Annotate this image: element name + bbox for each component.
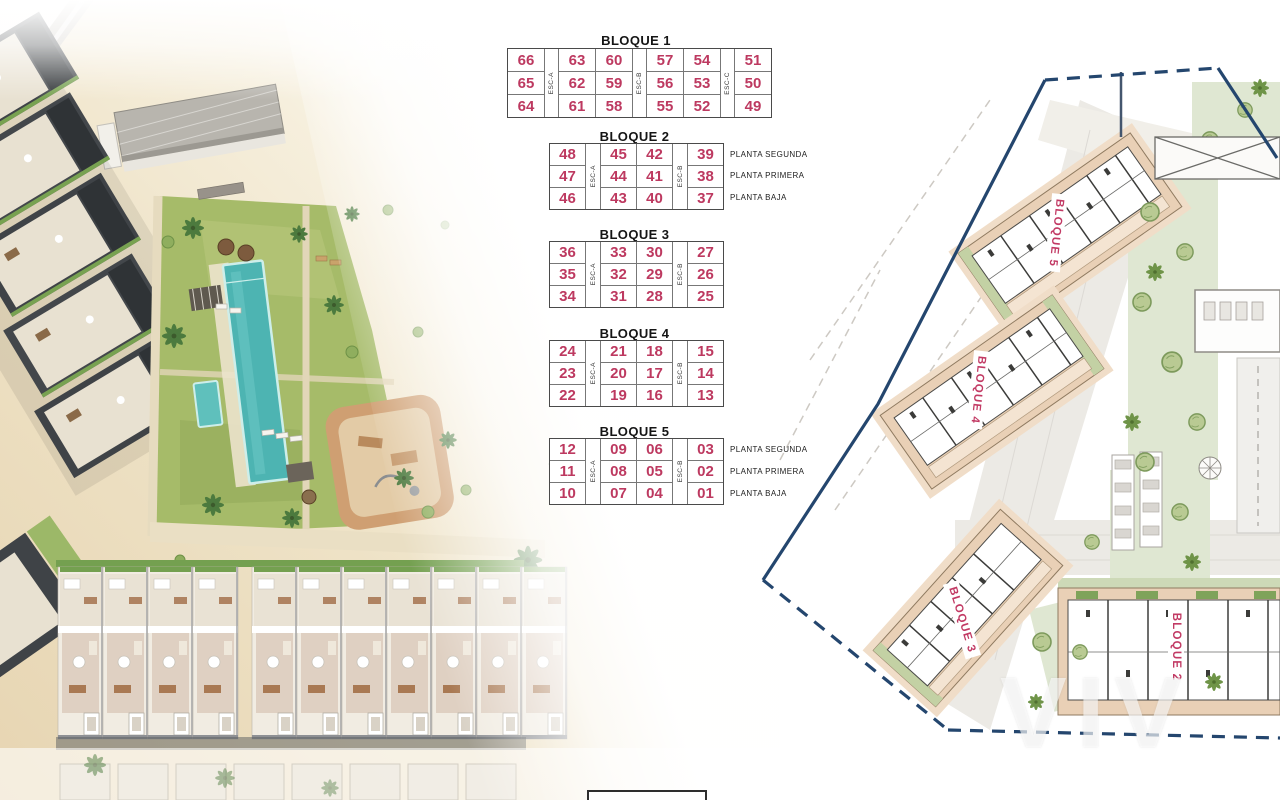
unit-cell: 48 [550, 144, 586, 166]
stair-label: ESC-A [590, 362, 597, 384]
stair-label: ESC-B [677, 362, 684, 384]
stair-label: ESC-B [677, 460, 684, 482]
unit-cell: 42 [637, 144, 673, 166]
unit-cell: 24 [550, 341, 586, 363]
bloque-2-title: BLOQUE 2 [549, 129, 720, 144]
floor-label: PLANTA BAJA [730, 489, 787, 498]
unit-cell: 38 [688, 166, 723, 188]
unit-cell: 30 [637, 242, 673, 264]
cutoff-table-box [587, 790, 707, 800]
unit-cell: 43 [601, 188, 637, 209]
unit-cell: 41 [637, 166, 673, 188]
bloque-3-table: 36 35 34 ESC-A 33 32 31 30 29 28 ESC-B 2… [549, 241, 724, 308]
unit-cell: 03 [688, 439, 723, 461]
unit-cell: 46 [550, 188, 586, 209]
unit-cell: 15 [688, 341, 723, 363]
unit-cell: 47 [550, 166, 586, 188]
unit-cell: 49 [735, 95, 771, 117]
unit-cell: 33 [601, 242, 637, 264]
unit-cell: 10 [550, 483, 586, 504]
stair-label: ESC-B [677, 165, 684, 187]
unit-cell: 11 [550, 461, 586, 483]
unit-cell: 39 [688, 144, 723, 166]
unit-cell: 50 [735, 72, 771, 95]
unit-cell: 65 [508, 72, 545, 95]
unit-cell: 52 [684, 95, 721, 117]
unit-cell: 55 [647, 95, 684, 117]
floor-label: PLANTA PRIMERA [730, 467, 804, 476]
unit-cell: 45 [601, 144, 637, 166]
unit-cell: 17 [637, 363, 673, 385]
bloque-5-title: BLOQUE 5 [549, 424, 720, 439]
unit-cell: 08 [601, 461, 637, 483]
unit-cell: 07 [601, 483, 637, 504]
unit-cell: 53 [684, 72, 721, 95]
unit-cell: 29 [637, 264, 673, 286]
unit-cell: 59 [596, 72, 633, 95]
floor-label: PLANTA SEGUNDA [730, 150, 807, 159]
bloque-4-title: BLOQUE 4 [549, 326, 720, 341]
unit-cell: 14 [688, 363, 723, 385]
plan-pool-deck [1237, 358, 1280, 533]
page: BLOQUE 5 BLOQUE 4 BLOQUE 3 BLOQUE 2 VIV … [0, 0, 1280, 800]
unit-cell: 27 [688, 242, 723, 264]
unit-cell: 23 [550, 363, 586, 385]
bloque-2-table: 48 47 46 ESC-A 45 44 43 42 41 40 ESC-B 3… [549, 143, 724, 210]
unit-cell: 34 [550, 286, 586, 307]
unit-cell: 66 [508, 49, 545, 72]
bloque-4-table: 24 23 22 ESC-A 21 20 19 18 17 16 ESC-B 1… [549, 340, 724, 407]
unit-cell: 51 [735, 49, 771, 72]
unit-cell: 61 [559, 95, 596, 117]
floor-label: PLANTA BAJA [730, 193, 787, 202]
unit-cell: 26 [688, 264, 723, 286]
unit-cell: 05 [637, 461, 673, 483]
unit-cell: 19 [601, 385, 637, 406]
unit-cell: 01 [688, 483, 723, 504]
unit-cell: 22 [550, 385, 586, 406]
unit-cell: 60 [596, 49, 633, 72]
bloque-3-title: BLOQUE 3 [549, 227, 720, 242]
bloque-1-title: BLOQUE 1 [507, 33, 765, 48]
kids-pool [193, 381, 222, 428]
unit-cell: 58 [596, 95, 633, 117]
unit-cell: 35 [550, 264, 586, 286]
unit-cell: 06 [637, 439, 673, 461]
unit-cell: 20 [601, 363, 637, 385]
unit-cell: 25 [688, 286, 723, 307]
unit-cell: 62 [559, 72, 596, 95]
unit-cell: 40 [637, 188, 673, 209]
stair-label: ESC-A [590, 165, 597, 187]
plan-ramp [1155, 137, 1280, 179]
unit-cell: 37 [688, 188, 723, 209]
unit-cell: 13 [688, 385, 723, 406]
unit-cell: 54 [684, 49, 721, 72]
unit-cell: 64 [508, 95, 545, 117]
unit-cell: 44 [601, 166, 637, 188]
floor-label: PLANTA SEGUNDA [730, 445, 807, 454]
unit-cell: 31 [601, 286, 637, 307]
stair-label: ESC-B [636, 72, 643, 94]
unit-cell: 36 [550, 242, 586, 264]
bloque-1-table: 66 65 64 ESC-A 63 62 61 60 59 58 ESC-B 5… [507, 48, 772, 118]
stair-label: ESC-A [548, 72, 555, 94]
unit-cell: 57 [647, 49, 684, 72]
unit-cell: 56 [647, 72, 684, 95]
bloque-5-table: 12 11 10 ESC-A 09 08 07 06 05 04 ESC-B 0… [549, 438, 724, 505]
unit-cell: 02 [688, 461, 723, 483]
unit-cell: 21 [601, 341, 637, 363]
unit-cell: 16 [637, 385, 673, 406]
unit-cell: 04 [637, 483, 673, 504]
stair-label: ESC-A [590, 460, 597, 482]
watermark: VIV [1000, 656, 1191, 771]
unit-cell: 09 [601, 439, 637, 461]
stair-label: ESC-B [677, 263, 684, 285]
unit-cell: 32 [601, 264, 637, 286]
unit-cell: 18 [637, 341, 673, 363]
stair-label: ESC-C [724, 72, 731, 95]
unit-cell: 63 [559, 49, 596, 72]
unit-cell: 12 [550, 439, 586, 461]
unit-cell: 28 [637, 286, 673, 307]
stair-label: ESC-A [590, 263, 597, 285]
floor-label: PLANTA PRIMERA [730, 171, 804, 180]
site-plan-illustration [740, 40, 1280, 760]
